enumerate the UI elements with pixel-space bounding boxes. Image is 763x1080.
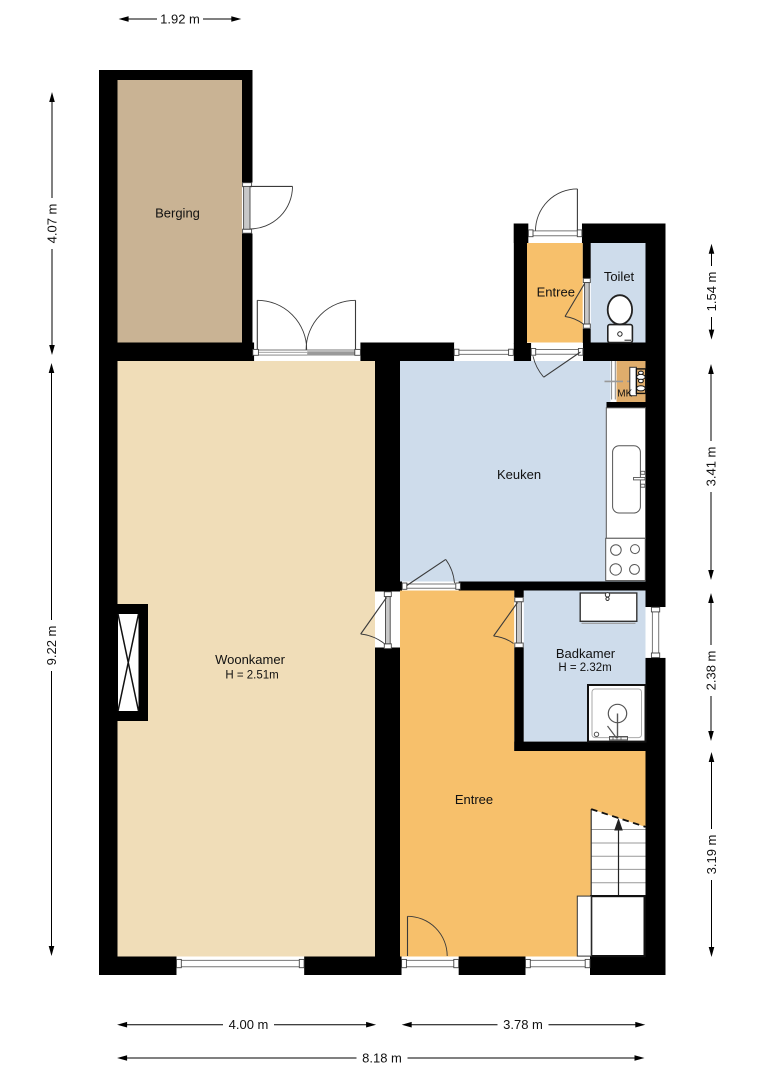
svg-text:2.38 m: 2.38 m <box>704 651 719 691</box>
svg-text:3.78 m: 3.78 m <box>503 1017 543 1032</box>
svg-text:Keuken: Keuken <box>497 467 541 482</box>
svg-text:3.41 m: 3.41 m <box>704 447 719 487</box>
svg-text:8.18 m: 8.18 m <box>362 1051 402 1066</box>
svg-text:H = 2.32m: H = 2.32m <box>558 662 611 674</box>
svg-text:H = 2.51m: H = 2.51m <box>225 670 278 682</box>
svg-text:9.22 m: 9.22 m <box>44 626 59 666</box>
svg-text:Berging: Berging <box>155 206 200 221</box>
svg-text:Entree: Entree <box>537 285 575 300</box>
svg-text:MK: MK <box>617 389 632 400</box>
svg-text:Toilet: Toilet <box>604 269 635 284</box>
svg-text:Entree: Entree <box>455 792 493 807</box>
svg-text:1.92 m: 1.92 m <box>160 12 200 27</box>
svg-text:1.54 m: 1.54 m <box>704 272 719 312</box>
svg-text:4.00 m: 4.00 m <box>229 1017 269 1032</box>
svg-text:Woonkamer: Woonkamer <box>215 652 286 667</box>
svg-text:4.07 m: 4.07 m <box>45 204 60 244</box>
svg-text:Badkamer: Badkamer <box>556 646 616 661</box>
svg-text:3.19 m: 3.19 m <box>704 835 719 875</box>
